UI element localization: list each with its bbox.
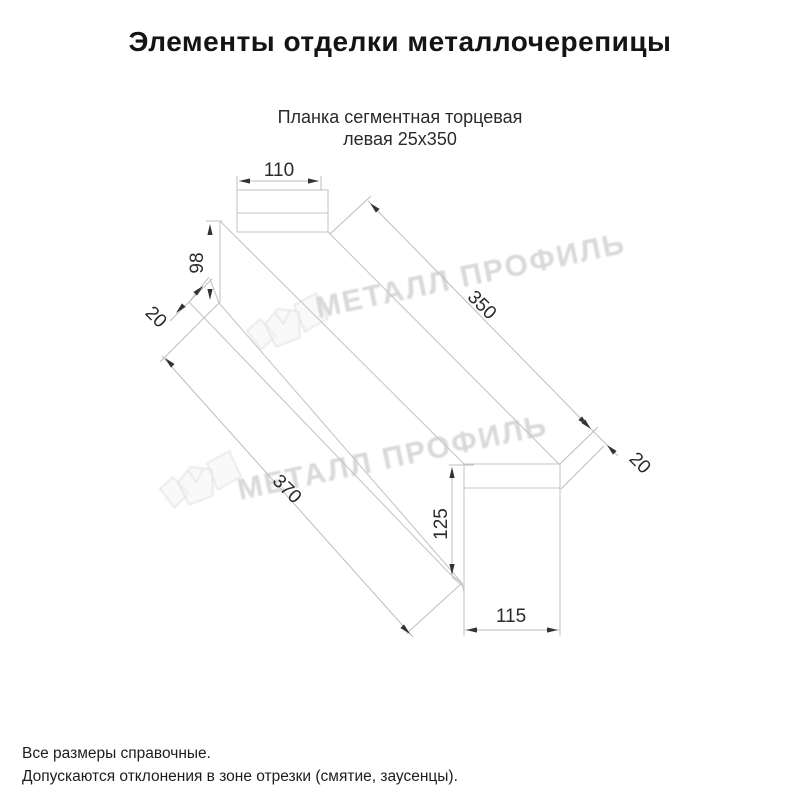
- dim-label-hem: 20: [141, 302, 171, 332]
- footnotes: Все размеры справочные. Допускаются откл…: [22, 742, 458, 788]
- dim-label-end-width: 115: [496, 606, 526, 627]
- catalog-page: Элементы отделки металлочерепицы Планка …: [0, 0, 800, 800]
- dim-label-end-height: 125: [431, 508, 452, 540]
- technical-drawing: МЕТАЛЛ ПРОФИЛЬ МЕТАЛЛ ПРОФИЛЬ: [0, 0, 800, 800]
- watermark-layer: МЕТАЛЛ ПРОФИЛЬ МЕТАЛЛ ПРОФИЛЬ: [155, 227, 628, 510]
- watermark-logo-icon: [155, 450, 244, 510]
- dim-label-flange-width: 110: [264, 160, 294, 181]
- footnote-dimensions: Все размеры справочные.: [22, 742, 458, 765]
- footnote-tolerances: Допускаются отклонения в зоне отрезки (с…: [22, 765, 458, 788]
- dim-label-end-flange: 20: [625, 448, 655, 478]
- dimension-labels: 110 98 20 350 370 125 115 20: [141, 160, 655, 627]
- watermark-text: МЕТАЛЛ ПРОФИЛЬ: [313, 227, 629, 325]
- dim-label-back-height: 98: [187, 252, 208, 273]
